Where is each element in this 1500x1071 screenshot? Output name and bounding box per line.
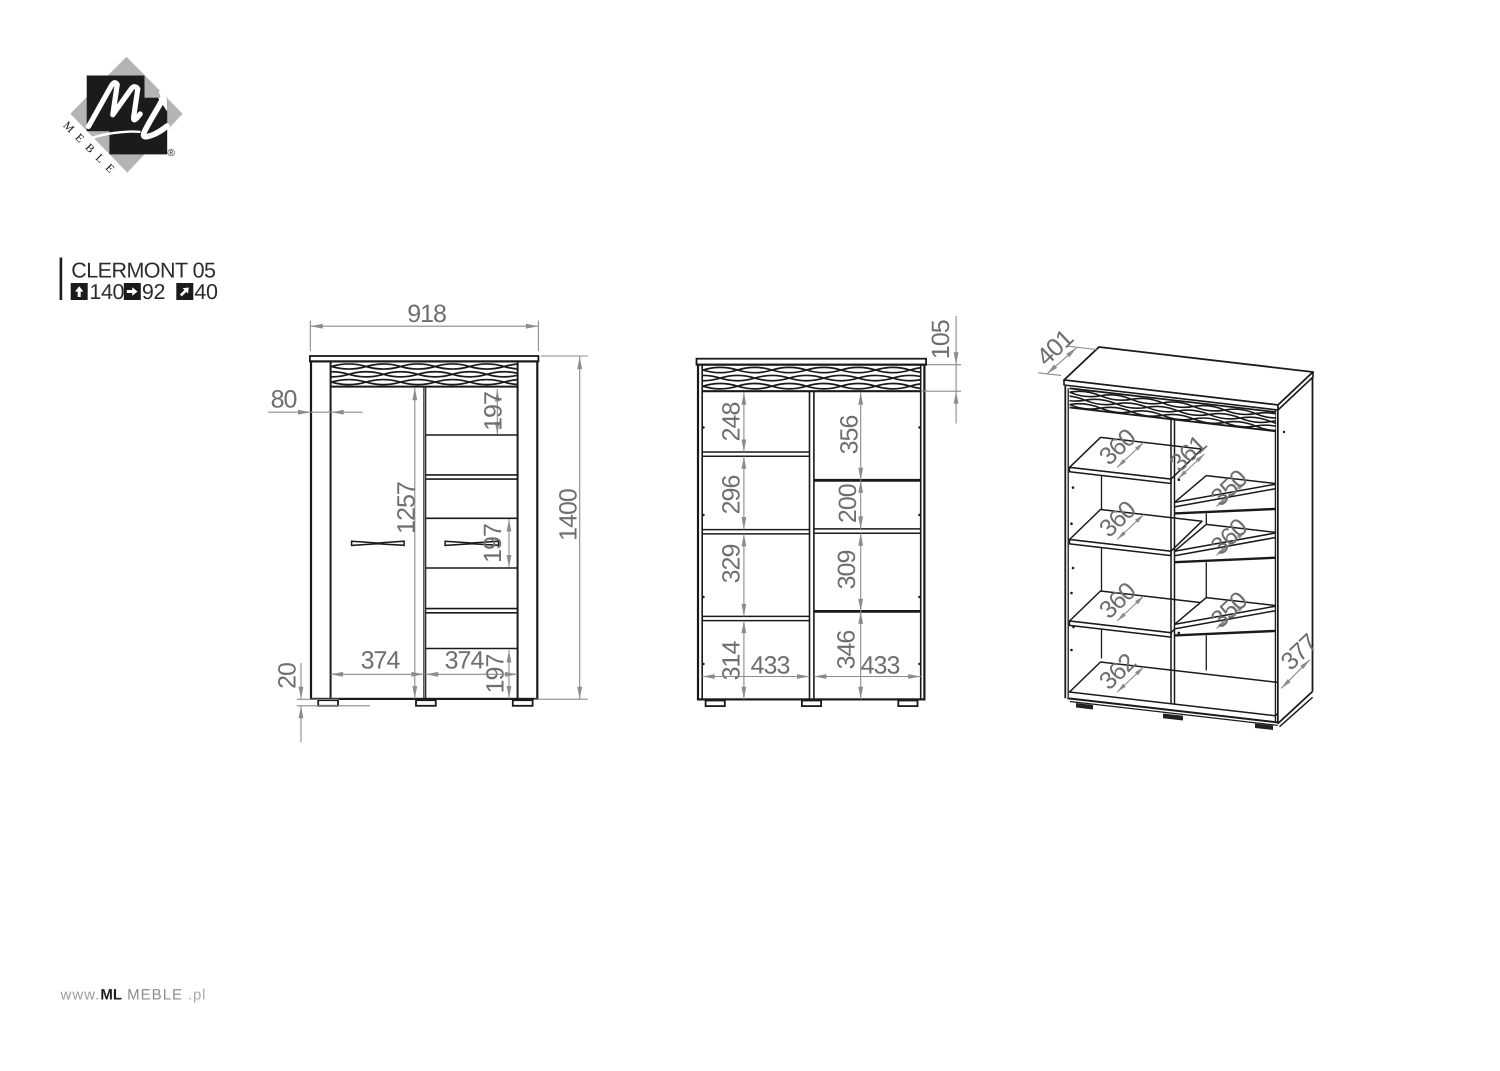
svg-text:105: 105 (927, 320, 955, 359)
svg-text:40: 40 (194, 280, 218, 304)
svg-text:248: 248 (718, 403, 746, 442)
svg-text:433: 433 (861, 652, 900, 680)
svg-text:1257: 1257 (393, 482, 421, 534)
svg-text:80: 80 (271, 386, 297, 414)
svg-text:197: 197 (479, 392, 507, 431)
svg-text:20: 20 (274, 663, 302, 689)
svg-text:1400: 1400 (555, 489, 583, 541)
svg-text:346: 346 (833, 631, 861, 670)
svg-text:918: 918 (407, 300, 446, 328)
svg-text:309: 309 (833, 551, 861, 590)
svg-text:314: 314 (718, 641, 746, 681)
svg-text:374: 374 (361, 646, 401, 674)
svg-text:329: 329 (718, 545, 746, 584)
svg-text:140: 140 (89, 280, 124, 304)
svg-text:356: 356 (836, 416, 864, 455)
svg-text:374: 374 (445, 646, 485, 674)
svg-text:200: 200 (834, 484, 862, 523)
svg-text:92: 92 (142, 280, 165, 304)
svg-text:433: 433 (751, 652, 790, 680)
svg-text:www.ML MEBLE .pl: www.ML MEBLE .pl (60, 987, 207, 1004)
svg-text:296: 296 (718, 476, 746, 515)
svg-text:®: ® (168, 148, 176, 159)
svg-text:197: 197 (479, 524, 507, 563)
svg-text:CLERMONT 05: CLERMONT 05 (71, 258, 216, 282)
